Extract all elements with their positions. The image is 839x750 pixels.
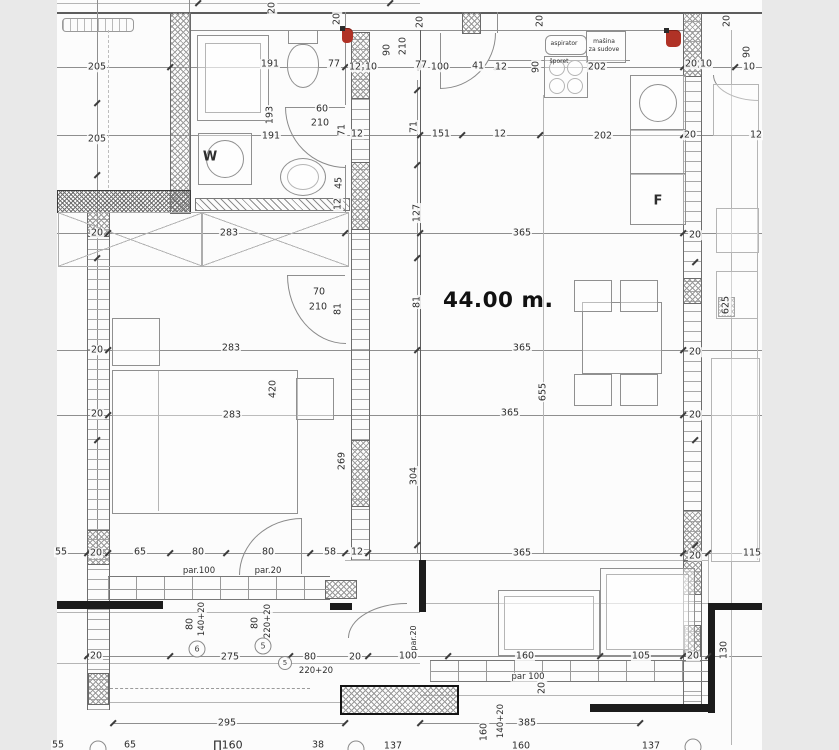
- circled-mark: [90, 741, 107, 750]
- chair: [574, 374, 612, 406]
- dim-label: 55: [54, 547, 68, 557]
- area-value: 44.00 m: [443, 288, 544, 313]
- dim-label: 137: [383, 741, 403, 750]
- dim-label: 12: [348, 62, 362, 72]
- circled-mark: 5: [278, 656, 292, 670]
- wall-line: [345, 560, 708, 561]
- dim-label: 58: [323, 547, 337, 557]
- dim-label: 45: [334, 176, 344, 190]
- burner: [549, 78, 565, 94]
- wall-line-v: [345, 12, 346, 105]
- nightstand: [296, 378, 334, 420]
- wall-diagonal: [195, 198, 350, 211]
- wall-line-v: [420, 30, 421, 610]
- dim-label: 160: [511, 741, 531, 750]
- area-suffix: .: [544, 287, 553, 313]
- dim-label: 115: [742, 548, 762, 558]
- dim-label: 100: [398, 651, 418, 661]
- dim-label: 20: [537, 681, 547, 695]
- dim-label: 205: [87, 134, 107, 144]
- dim-label: 283: [219, 228, 239, 238]
- dim-label: 20: [688, 347, 702, 357]
- dim-label: 20: [348, 652, 362, 662]
- chair: [574, 280, 612, 312]
- circled-mark: [348, 741, 365, 750]
- dim-line: [85, 656, 762, 657]
- parapet-wall: [340, 685, 459, 715]
- couch-cushion: [606, 574, 689, 650]
- couch-cushion: [504, 596, 594, 650]
- dim-label: 202: [593, 131, 613, 141]
- dim-label: 20: [535, 14, 545, 28]
- dim-label: 12: [749, 130, 763, 140]
- chair: [620, 374, 658, 406]
- dim-label: 655: [538, 382, 548, 402]
- chair: [620, 280, 658, 312]
- wardrobe-x: [201, 212, 349, 267]
- wall-hatched: [170, 12, 191, 214]
- dim-label: 10: [364, 62, 378, 72]
- section-wall: [715, 603, 762, 610]
- circled-mark: [685, 739, 702, 750]
- dashed-line: [110, 688, 310, 689]
- dim-label: 20: [684, 59, 698, 69]
- dim-label: F: [653, 195, 664, 208]
- dim-label: 137: [641, 741, 661, 750]
- dim-label: par.20: [410, 624, 418, 651]
- dim-line-v: [543, 95, 544, 553]
- wall-hatched-dark: [57, 190, 191, 213]
- dim-label: 100: [430, 62, 450, 72]
- dim-label: 20: [688, 551, 702, 561]
- dim-label: za sudove: [588, 47, 620, 53]
- window-band: [108, 576, 330, 600]
- dim-label: 80: [261, 547, 275, 557]
- dim-line: [57, 553, 762, 554]
- dim-label: 20: [688, 230, 702, 240]
- dim-label: 90: [742, 45, 752, 59]
- dim-label: 365: [512, 548, 532, 558]
- dim-label: 105: [631, 651, 651, 661]
- dim-label: 210: [398, 36, 408, 56]
- dim-label: 77: [327, 59, 341, 69]
- dim-label: 55: [51, 740, 65, 750]
- dining-table: [582, 302, 662, 374]
- dim-label: 191: [260, 59, 280, 69]
- dim-label: 71: [409, 120, 419, 134]
- dim-label: 151: [431, 129, 451, 139]
- dim-label: 20: [90, 409, 104, 419]
- terrace-line: [420, 695, 710, 696]
- dim-label: mašina: [592, 39, 616, 45]
- dim-label: 20: [89, 548, 103, 558]
- window-band: [430, 660, 708, 682]
- dim-label: 90: [382, 43, 392, 57]
- dim-line: [57, 67, 762, 68]
- dim-label: 20: [688, 410, 702, 420]
- dim-label: 365: [512, 228, 532, 238]
- dim-label: 191: [261, 131, 281, 141]
- dim-label: 269: [337, 451, 347, 471]
- dim-label: 10: [742, 62, 756, 72]
- wall-hatched: [351, 162, 370, 230]
- dim-label: 80: [250, 616, 260, 630]
- dim-label: aspirator: [550, 41, 579, 47]
- red-pen-mark: [666, 30, 681, 47]
- dim-label: 220+20: [298, 667, 334, 676]
- dim-label: 140+20: [497, 703, 506, 739]
- dim-label: 80: [191, 547, 205, 557]
- dim-label: 20: [686, 651, 700, 661]
- dim-label: ∏160: [212, 740, 243, 750]
- toilet-bowl: [287, 44, 319, 88]
- dashed-line-v: [108, 30, 109, 188]
- shower-inner: [205, 43, 261, 113]
- section-wall: [419, 560, 426, 612]
- dim-label: 80: [185, 617, 195, 631]
- dim-label: 625: [721, 295, 731, 315]
- dim-label: 275: [220, 652, 240, 662]
- neighbor-furniture: [711, 358, 760, 562]
- dim-label: šporet: [549, 59, 570, 65]
- dim-label: 81: [333, 302, 343, 316]
- dim-label: 283: [222, 410, 242, 420]
- terrace-line: [110, 702, 345, 703]
- dim-label: 202: [587, 62, 607, 72]
- dim-label: 80: [303, 652, 317, 662]
- neighbor-cabinet: [713, 84, 759, 136]
- dim-label: 12: [333, 197, 343, 211]
- dim-label: 160: [515, 651, 535, 661]
- dim-label: par.100: [182, 567, 216, 576]
- dim-label: 365: [500, 408, 520, 418]
- dim-label: 90: [531, 60, 541, 74]
- dim-label: 20: [90, 345, 104, 355]
- dim-label: 160: [479, 722, 489, 742]
- dim-label: 20: [90, 228, 104, 238]
- wall-hatched: [683, 278, 702, 304]
- door-jamb: [497, 12, 498, 33]
- dim-label: 10: [699, 59, 713, 69]
- wardrobe-x: [58, 212, 203, 267]
- dim-label: 385: [517, 718, 537, 728]
- dim-label: 304: [409, 466, 419, 486]
- circled-mark: 6: [189, 641, 206, 658]
- dim-label: 12: [350, 129, 364, 139]
- bed-pillow-line: [158, 371, 159, 511]
- dim-label: par.20: [254, 567, 283, 576]
- kitchen-counter: [630, 129, 686, 175]
- wall-ladder: [87, 212, 110, 710]
- dim-label: 283: [221, 343, 241, 353]
- dim-line: [57, 3, 420, 4]
- dim-label: 65: [133, 547, 147, 557]
- toilet-tank: [288, 30, 318, 44]
- wall-line-v: [708, 553, 709, 603]
- dim-label: 220+20: [264, 603, 273, 639]
- dim-label: 81: [412, 295, 422, 309]
- wall-pillar: [462, 12, 481, 34]
- dim-label: 20: [722, 14, 732, 28]
- dim-label: 20: [683, 130, 697, 140]
- nightstand: [112, 318, 160, 366]
- dim-label: 210: [310, 118, 330, 128]
- dim-label: 295: [217, 718, 237, 728]
- section-wall: [708, 603, 715, 713]
- dim-label: 65: [123, 740, 137, 750]
- radiator: [62, 18, 134, 32]
- neighbor-chair: [716, 208, 759, 253]
- dim-label: 127: [412, 203, 422, 223]
- dim-label: 193: [265, 105, 275, 125]
- dim-label: 365: [512, 343, 532, 353]
- dim-label: 420: [268, 379, 278, 399]
- dim-label: 12: [493, 129, 507, 139]
- dim-label: 20: [332, 12, 342, 26]
- kitchen-sink: [639, 84, 677, 122]
- wall-hatched: [351, 440, 370, 507]
- wall-hatched: [88, 673, 109, 705]
- dim-label: 12: [494, 62, 508, 72]
- dim-label: 205: [87, 62, 107, 72]
- red-pen-mark: [342, 28, 353, 43]
- burner: [567, 78, 583, 94]
- section-wall: [590, 704, 712, 712]
- dim-label: 20: [89, 651, 103, 661]
- section-wall: [330, 603, 352, 610]
- dim-label: 140+20: [198, 601, 207, 637]
- dim-label: 38: [311, 740, 325, 750]
- section-wall: [57, 601, 163, 609]
- dim-label: 71: [337, 123, 347, 137]
- dim-label: 130: [719, 640, 729, 660]
- floorplan-canvas: 44.00 m. 2020202020205191771210902107710…: [0, 0, 839, 750]
- dim-label: 41: [471, 61, 485, 71]
- dim-label: 210: [308, 302, 328, 312]
- dim-label: W: [202, 151, 218, 164]
- sink-basin-inner: [287, 164, 319, 190]
- dim-label: 77: [414, 60, 428, 70]
- terrace-line: [57, 663, 420, 664]
- dim-label: 12: [350, 547, 364, 557]
- dim-label: 60: [315, 104, 329, 114]
- area-label: 44.00 m.: [443, 287, 563, 313]
- circled-mark: 5: [255, 638, 272, 655]
- dim-label: 20: [415, 15, 425, 29]
- dim-label: 70: [312, 287, 326, 297]
- wall-line-top: [57, 12, 762, 14]
- dim-label: 20: [267, 1, 277, 15]
